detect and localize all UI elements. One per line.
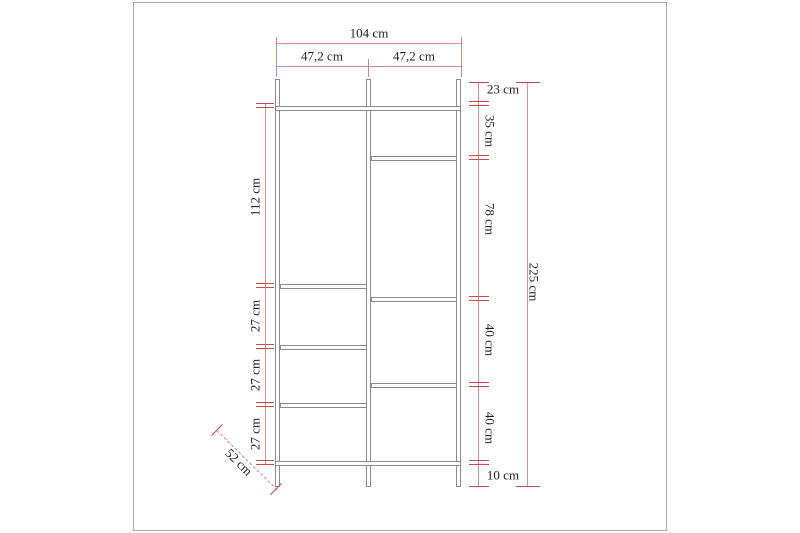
shelf-left-2 (280, 345, 367, 350)
dim-label-right-seg-6: 10 cm (487, 469, 519, 482)
dim-label-left-seg-1: 112 cm (249, 178, 262, 216)
dimension-tick (469, 464, 489, 465)
dimension-tick (469, 159, 489, 160)
dim-label-left-seg-3: 27 cm (249, 359, 262, 391)
dimension-tick (256, 287, 274, 288)
dimension-tick (469, 460, 489, 461)
dimension-tick (256, 348, 274, 349)
dim-label-total-height: 225 cm (528, 263, 541, 302)
post-middle (366, 79, 371, 487)
dimension-tick (469, 486, 489, 487)
dim-label-section-width-left: 47,2 cm (301, 50, 343, 63)
dimension-tick (469, 296, 489, 297)
dimension-tick (469, 101, 489, 102)
dimension-tick (469, 386, 489, 387)
dimension-tick (256, 464, 274, 465)
dim-label-right-seg-5: 40 cm (484, 412, 497, 444)
shelf-bottom (275, 461, 461, 466)
shelf-left-3 (280, 403, 367, 408)
dim-label-right-seg-2: 35 cm (484, 115, 497, 147)
shelf-top (275, 106, 461, 111)
shelf-right-2 (371, 297, 457, 302)
frame-border (133, 2, 667, 531)
dim-label-left-seg-4: 27 cm (249, 418, 262, 450)
dim-label-right-seg-1: 23 cm (487, 83, 519, 96)
dimension-tick (256, 107, 274, 108)
post-left (275, 79, 280, 487)
dim-label-right-seg-4: 40 cm (484, 324, 497, 356)
dimension-line-section-right (368, 66, 462, 67)
shelf-left-1 (280, 284, 367, 289)
extension-line (276, 37, 277, 77)
dimension-line-section-left (276, 66, 368, 67)
dimension-tick (256, 460, 274, 461)
shelf-right-1 (371, 156, 457, 161)
dim-label-right-seg-3: 78 cm (484, 203, 497, 235)
dim-label-section-width-right: 47,2 cm (393, 50, 435, 63)
dimension-tick (469, 300, 489, 301)
dimension-drawing-canvas: 104 cm 47,2 cm 47,2 cm 23 cm 35 cm 78 cm… (0, 0, 800, 533)
post-right (456, 79, 461, 487)
dimension-tick (516, 486, 540, 487)
dimension-line-right-segments (478, 82, 479, 486)
dimension-tick (256, 406, 274, 407)
dimension-tick (469, 382, 489, 383)
extension-line (368, 59, 369, 77)
dimension-tick (469, 105, 489, 106)
dimension-line-total-width (276, 43, 462, 44)
dimension-tick (256, 283, 274, 284)
dimension-tick (256, 344, 274, 345)
dim-label-left-seg-2: 27 cm (249, 300, 262, 332)
dimension-tick (256, 402, 274, 403)
dimension-tick (516, 82, 540, 83)
dimension-tick (469, 155, 489, 156)
dimension-line-left-segments (265, 104, 266, 465)
shelf-right-3 (371, 383, 457, 388)
dim-label-total-width: 104 cm (350, 27, 389, 40)
dimension-tick (256, 103, 274, 104)
extension-line (461, 37, 462, 77)
